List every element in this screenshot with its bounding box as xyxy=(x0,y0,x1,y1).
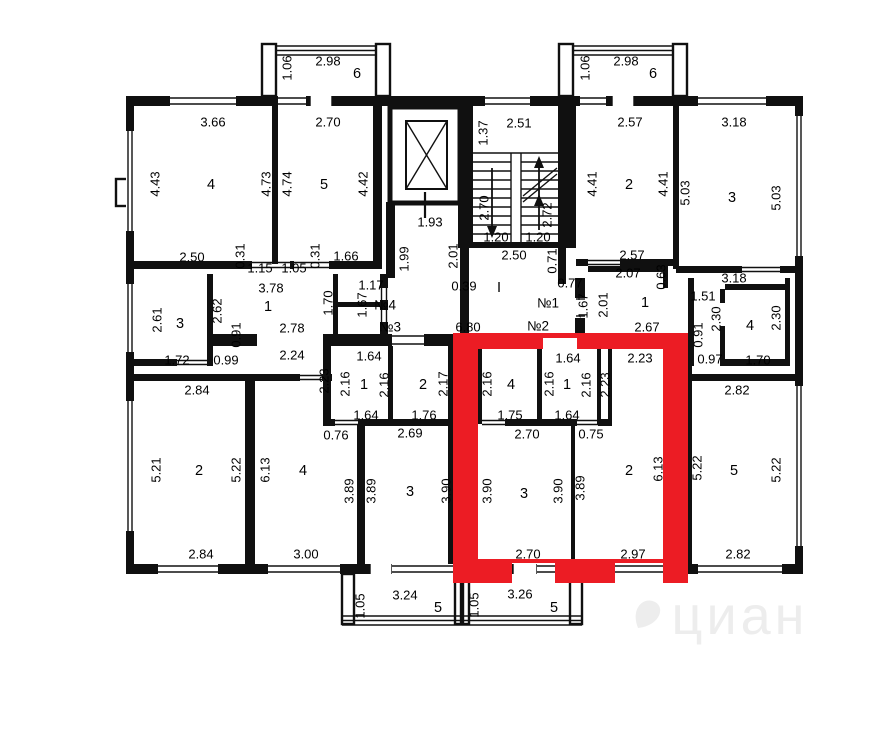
dimension-label: 2.97 xyxy=(620,546,645,561)
room-number-label: 5 xyxy=(550,600,558,616)
dimension-label: 2.30 xyxy=(708,306,723,331)
window-bottom-2 xyxy=(268,564,340,574)
dimension-label: 3.18 xyxy=(721,114,746,129)
dimension-label: 3.18 xyxy=(721,270,746,285)
dimension-label: 6.13 xyxy=(650,456,665,481)
dimension-label: 2.07 xyxy=(615,265,640,280)
dimension-label: 1.17 xyxy=(358,277,383,292)
dimension-label: 3.24 xyxy=(392,587,417,602)
dimension-label: 1.20 xyxy=(525,229,550,244)
window-left-3 xyxy=(126,401,134,531)
dimension-label: 0.63 xyxy=(653,264,668,289)
dimension-label: 2.69 xyxy=(397,425,422,440)
elevator xyxy=(390,107,460,218)
dimension-label: 2.23 xyxy=(316,368,331,393)
dimension-label: 2.16 xyxy=(376,372,391,397)
floor-plan-svg: циан 1.062.9861.062.9863.662.702.573.184… xyxy=(40,16,871,734)
dimension-label: 3.89 xyxy=(572,475,587,500)
balcony-door-top-2 xyxy=(612,96,634,106)
dimension-label: 1.15 xyxy=(247,260,272,275)
dimension-label: 3.90 xyxy=(438,478,453,503)
dimension-label: 1.70 xyxy=(745,352,770,367)
dimension-label: 1.67 xyxy=(575,293,590,318)
dimension-label: 4.41 xyxy=(584,171,599,196)
window-top-3 xyxy=(485,96,530,106)
dimension-label: 5.03 xyxy=(677,180,692,205)
dimension-label: 1.20 xyxy=(483,229,508,244)
room-number-label: 5 xyxy=(320,177,328,193)
dimension-label: 3.89 xyxy=(363,478,378,503)
dimension-label: 4.73 xyxy=(258,171,273,196)
dimension-label: 4.41 xyxy=(655,171,670,196)
unit-number-label: №3 xyxy=(379,320,401,335)
dimension-label: 0.77 xyxy=(557,275,582,290)
room-number-label: 6 xyxy=(649,66,657,82)
unit-number-label: №2 xyxy=(527,319,549,334)
room-number-label: 2 xyxy=(625,177,633,193)
dimension-label: 2.98 xyxy=(315,53,340,68)
dimension-label: 2.50 xyxy=(501,247,526,262)
room-number-label: 2 xyxy=(419,377,427,393)
dimension-label: 5.03 xyxy=(768,185,783,210)
room-number-label: 5 xyxy=(730,463,738,479)
dimension-label: 1.64 xyxy=(356,348,381,363)
dimension-label: 2.57 xyxy=(619,247,644,262)
dimension-label: 4.43 xyxy=(147,171,162,196)
room-number-label: 2 xyxy=(625,463,633,479)
dimension-label: 2.72 xyxy=(539,202,554,227)
window-bottom-3 xyxy=(392,564,454,574)
dimension-label: 2.70 xyxy=(514,426,539,441)
window-top-2 xyxy=(278,96,306,106)
dimension-label: 4.74 xyxy=(279,171,294,196)
dimension-label: 1.67 xyxy=(354,292,369,317)
dimension-label: 3.90 xyxy=(479,478,494,503)
room-number-label: 3 xyxy=(176,316,184,332)
room-number-label: 3 xyxy=(728,190,736,206)
dimension-label: 5.21 xyxy=(148,457,163,482)
room-number-label: 5 xyxy=(434,600,442,616)
dimension-label: 2.98 xyxy=(613,53,638,68)
room-number-label: 4 xyxy=(299,463,307,479)
window-right-2 xyxy=(795,386,803,546)
dimension-label: 1.05 xyxy=(281,260,306,275)
dimension-label: 4.42 xyxy=(355,171,370,196)
dimension-label: 3.90 xyxy=(550,478,565,503)
window-top-4 xyxy=(580,96,606,106)
dimension-label: 2.70 xyxy=(515,546,540,561)
dimension-label: 2.01 xyxy=(445,243,460,268)
dimension-label: 2.57 xyxy=(617,114,642,129)
room-number-label: 4 xyxy=(207,177,215,193)
dimension-label: 0.91 xyxy=(228,322,243,347)
dimension-label: 0.91 xyxy=(690,322,705,347)
window-bottom-6 xyxy=(698,564,782,574)
room-number-label: 1 xyxy=(264,299,272,315)
dimension-label: 1.99 xyxy=(396,246,411,271)
dimension-label: 5.22 xyxy=(768,457,783,482)
dimension-label: 2.23 xyxy=(627,350,652,365)
balcony-door-bottom-2 xyxy=(513,564,537,574)
dimension-label: 2.82 xyxy=(725,546,750,561)
dimension-label: 1.37 xyxy=(475,120,490,145)
dimension-label: 2.16 xyxy=(337,371,352,396)
window-top-5 xyxy=(698,96,766,106)
unit-number-label: №4 xyxy=(374,298,396,313)
room-number-label: 4 xyxy=(746,318,754,334)
dimension-label: 1.64 xyxy=(353,407,378,422)
dimension-label: 6.80 xyxy=(455,319,480,334)
dimension-label: 2.78 xyxy=(279,320,304,335)
room-number-label: 4 xyxy=(507,377,515,393)
dimension-label: 2.30 xyxy=(768,305,783,330)
room-number-label: 3 xyxy=(520,486,528,502)
dimension-label: 3.89 xyxy=(341,478,356,503)
dimension-label: 0.99 xyxy=(213,352,238,367)
dimension-label: 2.84 xyxy=(184,382,209,397)
balcony-door-top-1 xyxy=(310,96,332,106)
dimension-label: 0.76 xyxy=(323,427,348,442)
dimension-label: 0.31 xyxy=(232,243,247,268)
unit-number-label: №1 xyxy=(537,296,559,311)
dimension-label: 2.23 xyxy=(597,372,612,397)
dimension-label: 2.84 xyxy=(188,546,213,561)
dimension-label: 5.22 xyxy=(689,455,704,480)
dimension-label: 1.76 xyxy=(411,407,436,422)
dimension-label: 2.62 xyxy=(209,298,224,323)
dimension-label: 1.70 xyxy=(320,290,335,315)
dimension-label: 1.93 xyxy=(417,214,442,229)
dimension-label: 1.05 xyxy=(352,593,367,618)
dimension-label: 2.70 xyxy=(315,114,340,129)
dimension-label: 1.06 xyxy=(279,55,294,80)
dimension-label: 0.31 xyxy=(307,243,322,268)
dimension-label: 2.24 xyxy=(279,347,304,362)
room-number-label: 1 xyxy=(563,377,571,393)
dimension-label: 2.16 xyxy=(479,371,494,396)
room-number-label: 3 xyxy=(406,484,414,500)
window-bottom-1 xyxy=(158,564,218,574)
dimension-label: 1.51 xyxy=(690,288,715,303)
dimension-label: 0.39 xyxy=(451,278,476,293)
dimension-label: 0.75 xyxy=(578,426,603,441)
room-number-label: 6 xyxy=(353,66,361,82)
dimension-label: 2.70 xyxy=(476,195,491,220)
watermark: циан xyxy=(636,586,809,646)
window-left-2 xyxy=(126,284,134,352)
dimension-label: 3.66 xyxy=(200,114,225,129)
dimension-label: 2.16 xyxy=(541,371,556,396)
dimension-label: 2.61 xyxy=(149,307,164,332)
dimension-label: 0.71 xyxy=(544,248,559,273)
window-top-1 xyxy=(170,96,236,106)
dimension-label: 3.00 xyxy=(293,546,318,561)
dimension-label: 2.82 xyxy=(724,382,749,397)
balcony-door-bottom-1 xyxy=(370,564,392,574)
window-bottom-5 xyxy=(615,564,663,574)
dimension-label: 1.66 xyxy=(333,248,358,263)
dimension-label: 2.01 xyxy=(595,292,610,317)
room-number-label: I xyxy=(497,280,501,296)
dimension-label: 1.64 xyxy=(555,350,580,365)
window-right-1 xyxy=(795,116,803,256)
window-left-1 xyxy=(126,131,134,231)
room-number-label: 1 xyxy=(641,295,649,311)
watermark-text: циан xyxy=(672,586,809,646)
room-number-label: 2 xyxy=(195,463,203,479)
dimension-label: 6.13 xyxy=(257,457,272,482)
dimension-label: 2.16 xyxy=(578,372,593,397)
dimension-label: 2.51 xyxy=(506,115,531,130)
dimension-label: 3.78 xyxy=(258,280,283,295)
dimension-label: 1.64 xyxy=(554,407,579,422)
floor-plan-image[interactable]: циан 1.062.9861.062.9863.662.702.573.184… xyxy=(40,16,871,734)
dimension-label: 1.06 xyxy=(577,55,592,80)
window-bottom-4 xyxy=(537,564,555,574)
dimension-label: 1.05 xyxy=(466,592,481,617)
dimension-label: 2.17 xyxy=(435,371,450,396)
dimension-label: 2.67 xyxy=(634,319,659,334)
dimension-label: 2.50 xyxy=(179,249,204,264)
room-number-label: 1 xyxy=(360,377,368,393)
dimension-label: 1.72 xyxy=(164,352,189,367)
dimension-label: 0.97 xyxy=(697,351,722,366)
dimension-label: 1.75 xyxy=(497,407,522,422)
dimension-label: 3.26 xyxy=(507,586,532,601)
dimension-label: 5.22 xyxy=(228,457,243,482)
